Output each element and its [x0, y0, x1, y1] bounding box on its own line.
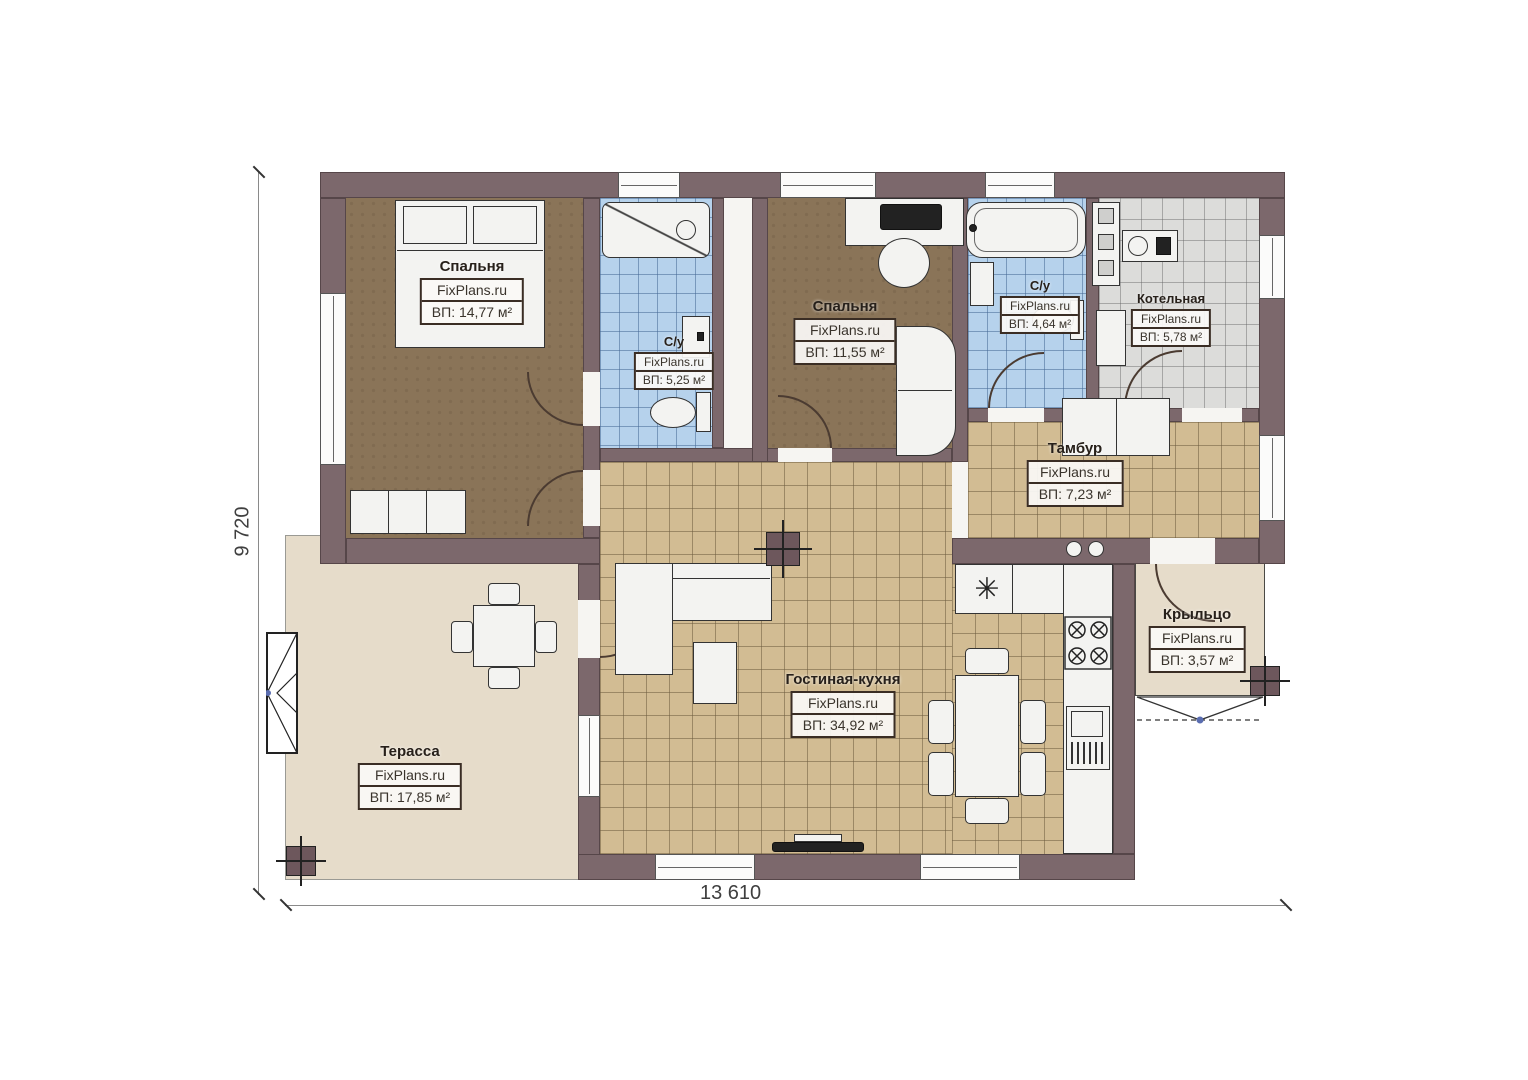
meter-cell [1098, 260, 1114, 276]
fridge-icon: ✳ [967, 570, 1007, 610]
window-vestibule [1259, 435, 1285, 521]
room-name: Терасса [380, 743, 439, 760]
wall-living-right [1113, 564, 1135, 854]
brand-watermark: FixPlans.ru [1133, 311, 1209, 329]
dining-chair [965, 798, 1009, 824]
boiler-switch [1156, 237, 1171, 255]
window-bath2 [985, 172, 1055, 198]
brand-watermark: FixPlans.ru [793, 693, 893, 715]
door-opening-bedroom2 [778, 448, 832, 462]
label-box: FixPlans.ru ВП: 11,55 м² [793, 318, 896, 365]
terrace-steps [266, 632, 298, 754]
pillow [403, 206, 467, 244]
room-name: Спальня [813, 298, 878, 315]
brand-watermark: FixPlans.ru [1002, 298, 1078, 316]
column-axis [782, 520, 784, 578]
wardrobe-divider [388, 490, 389, 534]
dimension-value-left: 9 720 [232, 502, 255, 562]
room-name: С/у [1030, 278, 1050, 293]
dimension-tick [253, 888, 266, 901]
brand-watermark: FixPlans.ru [636, 354, 712, 372]
blanket-line [397, 250, 543, 251]
window-living-bottom-1 [655, 854, 755, 880]
dimension-line-left [258, 172, 259, 895]
room-area: ВП: 14,77 м² [422, 302, 522, 323]
room-area: ВП: 3,57 м² [1151, 650, 1244, 671]
terrace-table [473, 605, 535, 667]
boiler-dial [1128, 236, 1148, 256]
label-box: FixPlans.ru ВП: 3,57 м² [1149, 626, 1246, 673]
room-label-boiler: Котельная FixPlans.ru ВП: 5,78 м² [1131, 291, 1211, 347]
meter-cell [1098, 234, 1114, 250]
door-opening-bedroom1-bath1 [583, 372, 600, 426]
brand-watermark: FixPlans.ru [360, 765, 460, 787]
room-area: ВП: 11,55 м² [795, 342, 894, 363]
dining-chair [928, 752, 954, 796]
door-opening-terrace [578, 600, 600, 658]
floor-plan-canvas: ✳ [0, 0, 1528, 1080]
oven-vents [1071, 742, 1103, 764]
toilet-cistern [696, 392, 711, 432]
dimension-value-bottom: 13 610 [700, 882, 761, 905]
wall-bedroom2-left [752, 198, 768, 462]
label-box: FixPlans.ru ВП: 5,25 м² [634, 352, 714, 390]
door-opening-boiler [1182, 408, 1242, 422]
sofa-corner-vertical [615, 563, 673, 675]
window-living-left [578, 715, 600, 797]
window-bedroom2 [780, 172, 876, 198]
wall-bedroom1-bottom [346, 538, 600, 564]
terrace-chair [488, 583, 520, 605]
window-living-bottom-2 [920, 854, 1020, 880]
counter-divider [1012, 564, 1013, 614]
room-name: Тамбур [1048, 440, 1102, 457]
sofa-seat-line [673, 578, 770, 579]
dimension-tick [253, 166, 266, 179]
room-area: ВП: 5,25 м² [636, 372, 712, 388]
column-axis [300, 836, 302, 886]
toilet-bowl [650, 397, 696, 428]
hob-stove [1064, 616, 1112, 670]
dining-chair [1020, 752, 1046, 796]
room-area: ВП: 17,85 м² [360, 787, 460, 808]
door-opening-entry [1150, 538, 1215, 564]
floor-terrace [285, 535, 580, 880]
washbasin [970, 262, 994, 306]
bathtub-tap [969, 224, 977, 232]
window-boiler [1259, 235, 1285, 299]
meter-cell [1098, 208, 1114, 224]
wall-bath1-right [712, 198, 724, 448]
door-opening-bath2 [988, 408, 1044, 422]
room-label-terrace: Терасса FixPlans.ru ВП: 17,85 м² [358, 743, 462, 810]
room-name: Гостиная-кухня [786, 671, 901, 688]
oven-door [1071, 711, 1103, 737]
bed-single [896, 326, 956, 456]
brand-watermark: FixPlans.ru [1029, 462, 1122, 484]
water-heater [1096, 310, 1126, 366]
room-label-porch: Крыльцо FixPlans.ru ВП: 3,57 м² [1149, 606, 1246, 673]
room-area: ВП: 34,92 м² [793, 715, 893, 736]
room-label-bath1: С/у FixPlans.ru ВП: 5,25 м² [634, 334, 714, 390]
label-box: FixPlans.ru ВП: 7,23 м² [1027, 460, 1124, 507]
coffee-table [693, 642, 737, 704]
porch-steps [1136, 696, 1264, 724]
brand-watermark: FixPlans.ru [422, 280, 522, 302]
dining-chair [965, 648, 1009, 674]
label-box: FixPlans.ru ВП: 34,92 м² [791, 691, 895, 738]
room-label-bedroom1: Спальня FixPlans.ru ВП: 14,77 м² [420, 258, 524, 325]
label-box: FixPlans.ru ВП: 14,77 м² [420, 278, 524, 325]
sink-bowl [1066, 541, 1082, 557]
room-name: С/у [664, 334, 684, 349]
pillow [473, 206, 537, 244]
wardrobe-divider [426, 490, 427, 534]
room-label-bedroom2: Спальня FixPlans.ru ВП: 11,55 м² [793, 298, 896, 365]
dining-chair [928, 700, 954, 744]
brand-watermark: FixPlans.ru [1151, 628, 1244, 650]
dimension-line-bottom [285, 905, 1285, 906]
desk-chair [878, 238, 930, 288]
room-label-living: Гостиная-кухня FixPlans.ru ВП: 34,92 м² [786, 671, 901, 738]
room-area: ВП: 5,78 м² [1133, 329, 1209, 345]
terrace-chair [535, 621, 557, 653]
room-area: ВП: 4,64 м² [1002, 316, 1078, 332]
wardrobe [350, 490, 466, 534]
room-label-vestibule: Тамбур FixPlans.ru ВП: 7,23 м² [1027, 440, 1124, 507]
passage-vestibule-living [952, 462, 968, 538]
computer-monitor [880, 204, 942, 230]
column-axis [1264, 656, 1266, 706]
label-box: FixPlans.ru ВП: 5,78 м² [1131, 309, 1211, 347]
tv-stand [794, 834, 842, 842]
room-area: ВП: 7,23 м² [1029, 484, 1122, 505]
dining-chair [1020, 700, 1046, 744]
room-label-bath2: С/у FixPlans.ru ВП: 4,64 м² [1000, 278, 1080, 334]
brand-watermark: FixPlans.ru [795, 320, 894, 342]
shower-drain [676, 220, 696, 240]
sink-bowl [1088, 541, 1104, 557]
door-opening-bedroom1-entry [583, 470, 600, 526]
terrace-chair [451, 621, 473, 653]
room-name: Спальня [440, 258, 505, 275]
bathtub-inner [974, 208, 1078, 252]
room-name: Крыльцо [1163, 606, 1231, 623]
window-bedroom1 [320, 293, 346, 465]
bed-single-divider [898, 390, 952, 391]
dining-table [955, 675, 1019, 797]
shaft-niche [724, 198, 752, 448]
room-name: Котельная [1137, 291, 1205, 306]
label-box: FixPlans.ru ВП: 4,64 м² [1000, 296, 1080, 334]
window-bath1 [618, 172, 680, 198]
label-box: FixPlans.ru ВП: 17,85 м² [358, 763, 462, 810]
tv [772, 842, 864, 852]
terrace-chair [488, 667, 520, 689]
